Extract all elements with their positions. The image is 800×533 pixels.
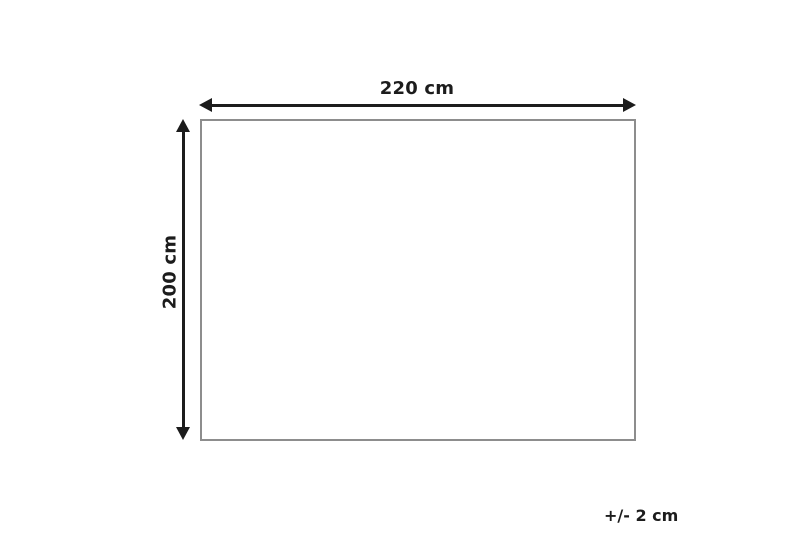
product-outline <box>200 119 636 441</box>
tolerance-label: +/- 2 cm <box>604 506 678 525</box>
arrow-down-icon <box>176 427 190 440</box>
arrow-right-icon <box>623 98 636 112</box>
arrow-line <box>182 124 185 435</box>
arrow-line <box>204 104 631 107</box>
dimension-diagram: 220 cm 200 cm +/- 2 cm <box>0 0 800 533</box>
width-dimension-label: 220 cm <box>198 78 636 99</box>
height-dimension-arrow <box>175 119 191 440</box>
width-dimension-arrow <box>199 97 636 113</box>
